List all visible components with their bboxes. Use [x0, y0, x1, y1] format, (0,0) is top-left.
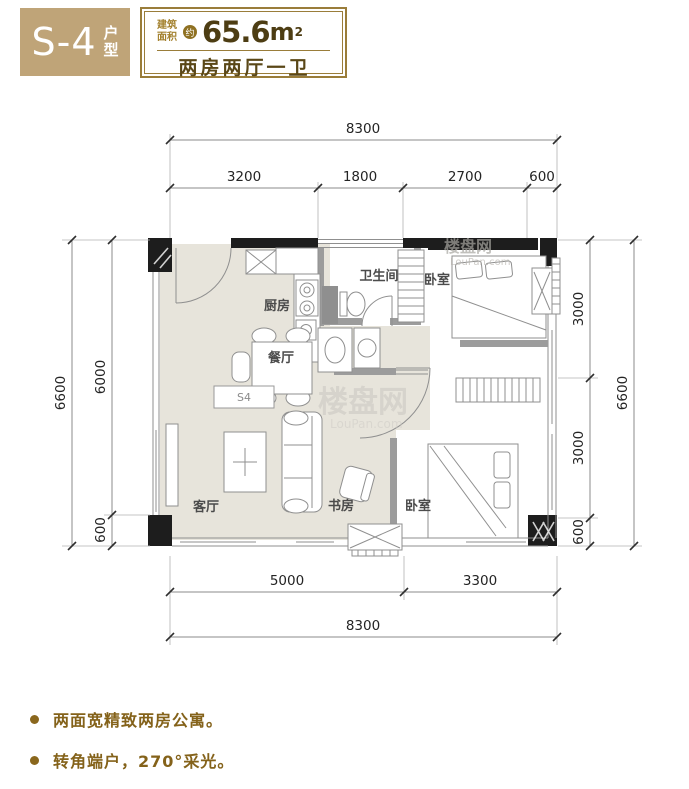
room-label-kitchen: 厨房	[264, 298, 290, 314]
watermark-cn-small: 楼盘网	[444, 237, 492, 256]
dim-right-seg-1: 3000	[571, 292, 587, 326]
dim-top-seg-4: 600	[529, 169, 555, 185]
dim-top-seg-1: 3200	[227, 169, 261, 185]
dim-left-seg-2: 600	[93, 517, 109, 543]
feature-item-2: 转角端户，270°采光。	[30, 748, 234, 772]
room-label-bedroom-bottom: 卧室	[405, 498, 431, 514]
bullet-dot-icon	[30, 756, 39, 765]
washing-machine	[354, 328, 380, 368]
dim-right-seg-2: 3000	[571, 431, 587, 465]
room-label-living: 客厅	[193, 499, 219, 515]
closet-bottom	[456, 378, 540, 402]
feature-text-2: 转角端户，270°采光。	[53, 748, 234, 772]
watermark-en: LouPan.com	[330, 417, 403, 431]
dim-right-outer: 6600	[615, 376, 631, 410]
room-label-dining: 餐厅	[267, 350, 294, 366]
dim-bottom-total: 8300	[346, 618, 380, 634]
dim-top-total: 8300	[346, 121, 380, 137]
feature-list: 两面宽精致两房公寓。 转角端户，270°采光。	[30, 707, 234, 789]
watermark-en-small: LouPan.com	[450, 257, 510, 268]
unit-label: S4	[237, 391, 251, 404]
bathroom-door	[362, 296, 392, 326]
unit-label-box: S4	[214, 386, 274, 408]
room-label-bathroom: 卫生间	[359, 268, 398, 284]
dim-bottom-seg-1: 5000	[270, 573, 304, 589]
dim-left-seg-1: 6000	[93, 360, 109, 394]
dim-right-seg-3: 600	[571, 519, 587, 545]
stove	[296, 280, 318, 316]
dim-top-seg-3: 2700	[448, 169, 482, 185]
wardrobe-top	[398, 250, 424, 322]
bed-bottom	[428, 444, 518, 538]
floor-plan: S4	[0, 0, 689, 786]
sofa	[282, 411, 322, 513]
watermark-center: 楼盘网 LouPan.com	[318, 385, 408, 431]
feature-item-1: 两面宽精致两房公寓。	[30, 707, 234, 731]
dim-top-seg-2: 1800	[343, 169, 377, 185]
toilet	[340, 292, 365, 316]
dim-left-outer: 6600	[53, 376, 69, 410]
coffee-table	[224, 432, 266, 492]
balcony-ac-unit	[348, 524, 402, 556]
room-label-bedroom-top: 卧室	[424, 272, 450, 288]
watermark-cn: 楼盘网	[318, 385, 408, 420]
tv-cabinet	[166, 424, 178, 506]
bullet-dot-icon	[30, 715, 39, 724]
room-label-study: 书房	[328, 498, 354, 514]
dim-bottom-seg-2: 3300	[463, 573, 497, 589]
shower	[322, 286, 338, 324]
wash-basin	[318, 328, 352, 372]
feature-text-1: 两面宽精致两房公寓。	[53, 707, 223, 731]
